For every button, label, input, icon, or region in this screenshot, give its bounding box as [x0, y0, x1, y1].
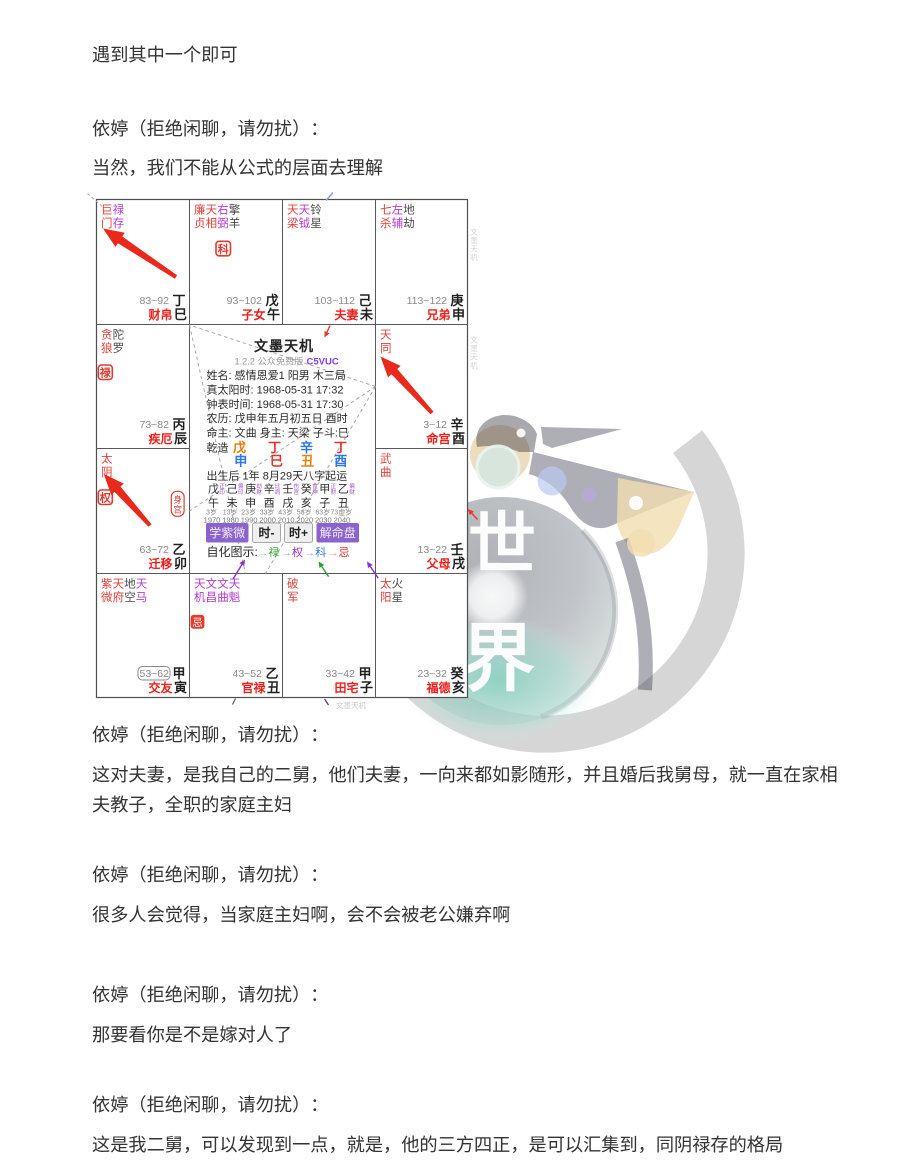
svg-text:权: 权 — [99, 491, 112, 505]
svg-text:太: 太 — [101, 453, 113, 466]
svg-text:贞: 贞 — [194, 216, 206, 230]
svg-text:廉: 廉 — [194, 203, 206, 217]
svg-text:财: 财 — [256, 488, 262, 496]
svg-text:钟表时间: 1968-05-31 17:30: 钟表时间: 1968-05-31 17:30 — [207, 397, 344, 411]
svg-text:狼: 狼 — [101, 341, 113, 355]
svg-text:午: 午 — [267, 307, 280, 322]
svg-text:庚: 庚 — [450, 293, 463, 308]
svg-text:戊: 戊 — [208, 482, 219, 495]
svg-text:丙: 丙 — [172, 417, 185, 432]
svg-text:申: 申 — [452, 307, 465, 322]
svg-text:辅: 辅 — [392, 216, 404, 230]
svg-text:53~62: 53~62 — [140, 668, 170, 680]
svg-text:擎: 擎 — [229, 203, 241, 217]
svg-text:学紫微: 学紫微 — [209, 525, 245, 540]
svg-text:午: 午 — [208, 496, 219, 509]
svg-text:农历: 戊申年五月初五日 酉时: 农历: 戊申年五月初五日 酉时 — [207, 411, 348, 425]
svg-text:阳: 阳 — [380, 591, 392, 604]
svg-text:紫: 紫 — [101, 578, 113, 591]
svg-text:壬: 壬 — [450, 542, 463, 557]
svg-text:星: 星 — [392, 591, 404, 604]
svg-text:右: 右 — [217, 203, 229, 217]
svg-text:1.2.2 公众免费版: 1.2.2 公众免费版 — [235, 356, 304, 367]
svg-text:甲: 甲 — [319, 483, 330, 495]
svg-text:天: 天 — [299, 205, 311, 217]
svg-text:申: 申 — [234, 454, 247, 469]
svg-text:疾厄: 疾厄 — [148, 431, 172, 446]
svg-text:昌: 昌 — [206, 591, 218, 604]
svg-text:103~112: 103~112 — [315, 295, 356, 307]
svg-text:机: 机 — [194, 590, 206, 604]
svg-text:3~12: 3~12 — [423, 419, 447, 431]
svg-text:罗: 罗 — [113, 342, 125, 355]
svg-text:太: 太 — [380, 578, 392, 591]
svg-text:己: 己 — [358, 293, 371, 308]
svg-text:子女: 子女 — [241, 307, 265, 322]
svg-text:己: 己 — [227, 483, 238, 495]
svg-text:63~72: 63~72 — [140, 544, 170, 556]
svg-text:文墨天机: 文墨天机 — [336, 700, 366, 710]
svg-text:乙: 乙 — [338, 482, 349, 495]
svg-text:姓名: 感情恩爱1 阳男 木三局: 姓名: 感情恩爱1 阳男 木三局 — [207, 368, 346, 382]
svg-text:天: 天 — [194, 579, 206, 591]
svg-text:天: 天 — [229, 579, 241, 591]
svg-text:巨: 巨 — [101, 205, 113, 217]
svg-text:财帛: 财帛 — [147, 307, 172, 322]
svg-text:地: 地 — [403, 204, 415, 217]
svg-text:时+: 时+ — [289, 525, 308, 540]
svg-text:夫妻: 夫妻 — [333, 307, 358, 322]
svg-text:同: 同 — [380, 343, 392, 355]
svg-text:73~82: 73~82 — [140, 419, 170, 431]
svg-text:偏: 偏 — [349, 482, 355, 490]
svg-text:劫: 劫 — [256, 482, 262, 490]
svg-text:23~32: 23~32 — [418, 668, 448, 680]
svg-text:官: 官 — [294, 488, 300, 496]
svg-text:府: 府 — [113, 590, 125, 604]
svg-text:军: 军 — [287, 591, 299, 604]
svg-text:丁: 丁 — [172, 293, 185, 308]
svg-text:酉: 酉 — [334, 454, 347, 469]
svg-text:武: 武 — [380, 453, 392, 466]
svg-text:→权: →权 — [281, 546, 303, 559]
svg-text:福德: 福德 — [425, 680, 450, 695]
svg-text:33~42: 33~42 — [326, 668, 356, 680]
svg-text:肩: 肩 — [275, 488, 281, 496]
svg-text:寅: 寅 — [174, 680, 187, 695]
svg-text:神: 神 — [312, 488, 318, 496]
svg-text:命宫: 命宫 — [425, 431, 450, 446]
svg-text:曲: 曲 — [217, 591, 229, 604]
svg-text:文: 文 — [206, 577, 218, 591]
svg-text:甲: 甲 — [172, 666, 185, 681]
svg-text:巳: 巳 — [174, 307, 187, 322]
svg-text:甲: 甲 — [358, 666, 371, 681]
svg-text:空: 空 — [124, 590, 136, 604]
svg-text:13~22: 13~22 — [418, 544, 448, 556]
svg-text:自化图示:: 自化图示: — [207, 545, 258, 559]
svg-text:财: 财 — [331, 488, 337, 496]
svg-text:羊: 羊 — [229, 216, 241, 230]
svg-text:印: 印 — [238, 489, 244, 496]
svg-text:禄: 禄 — [113, 203, 125, 217]
svg-text:亥: 亥 — [301, 495, 312, 509]
svg-text:→禄: →禄 — [258, 545, 280, 559]
svg-text:星: 星 — [310, 217, 322, 230]
svg-text:禄: 禄 — [99, 366, 112, 380]
svg-text:身: 身 — [173, 495, 182, 505]
svg-text:子: 子 — [319, 496, 330, 509]
svg-text:破: 破 — [287, 577, 299, 591]
svg-text:113~122: 113~122 — [407, 295, 448, 307]
svg-text:壬: 壬 — [282, 482, 293, 495]
svg-text:交友: 交友 — [148, 680, 172, 695]
svg-text:辰: 辰 — [174, 431, 188, 446]
svg-text:文墨天机: 文墨天机 — [469, 227, 478, 262]
svg-text:钺: 钺 — [299, 216, 311, 230]
svg-text:出生后 1年 8月29天八字起运: 出生后 1年 8月29天八字起运 — [207, 468, 348, 482]
svg-text:微: 微 — [101, 590, 113, 604]
svg-text:辛: 辛 — [264, 481, 275, 495]
svg-text:劫: 劫 — [403, 217, 415, 230]
svg-text:迁移: 迁移 — [148, 556, 172, 571]
svg-text:天: 天 — [380, 330, 392, 342]
svg-text:子: 子 — [360, 680, 373, 695]
svg-text:文墨天机: 文墨天机 — [469, 335, 478, 371]
svg-text:食: 食 — [312, 482, 318, 490]
svg-text:兄弟: 兄弟 — [425, 307, 450, 322]
svg-text:乙: 乙 — [172, 542, 185, 557]
svg-text:曲: 曲 — [380, 466, 392, 479]
svg-text:C5VUC: C5VUC — [307, 357, 339, 368]
svg-text:地: 地 — [124, 578, 136, 591]
svg-text:命主: 文曲 身主: 天梁 子斗:巳: 命主: 文曲 身主: 天梁 子斗:巳 — [207, 426, 349, 440]
svg-text:陀: 陀 — [113, 328, 125, 342]
svg-text:七: 七 — [380, 204, 392, 217]
svg-text:科: 科 — [218, 242, 229, 256]
svg-text:天: 天 — [113, 579, 125, 591]
svg-text:杀: 杀 — [380, 216, 392, 230]
svg-text:伤: 伤 — [294, 482, 300, 490]
svg-text:未: 未 — [227, 496, 238, 509]
svg-text:相: 相 — [206, 217, 218, 230]
svg-text:天: 天 — [206, 205, 218, 217]
svg-text:官禄: 官禄 — [241, 680, 266, 695]
svg-text:戌: 戌 — [452, 556, 465, 571]
svg-text:门: 门 — [101, 216, 113, 230]
svg-text:文: 文 — [217, 577, 229, 591]
svg-text:乾造: 乾造 — [207, 441, 229, 455]
svg-text:忌: 忌 — [192, 617, 203, 629]
svg-text:丑: 丑 — [267, 680, 280, 695]
svg-text:父母: 父母 — [425, 557, 450, 571]
svg-text:93~102: 93~102 — [227, 295, 262, 307]
svg-text:时-: 时- — [259, 525, 275, 540]
svg-text:正: 正 — [219, 483, 225, 490]
svg-text:83~92: 83~92 — [140, 295, 170, 307]
svg-text:铃: 铃 — [310, 203, 322, 217]
svg-text:卯: 卯 — [174, 556, 187, 571]
svg-text:辛: 辛 — [450, 417, 463, 432]
svg-text:比: 比 — [275, 482, 281, 490]
svg-text:丑: 丑 — [338, 497, 349, 509]
svg-text:酉: 酉 — [452, 431, 465, 446]
svg-text:解命盘: 解命盘 — [320, 525, 356, 540]
svg-text:癸: 癸 — [301, 481, 312, 495]
svg-text:财: 财 — [349, 488, 355, 496]
svg-text:丑: 丑 — [301, 454, 314, 469]
svg-text:魁: 魁 — [229, 590, 241, 604]
svg-text:印: 印 — [219, 489, 225, 496]
svg-text:酉: 酉 — [264, 497, 275, 509]
svg-text:巳: 巳 — [270, 454, 283, 469]
svg-text:梁: 梁 — [287, 216, 299, 230]
svg-text:弼: 弼 — [217, 217, 229, 230]
svg-text:存: 存 — [113, 216, 125, 230]
svg-text:→科: →科 — [304, 545, 326, 559]
svg-text:乙: 乙 — [265, 666, 278, 681]
svg-text:未: 未 — [359, 307, 374, 322]
svg-text:贪: 贪 — [101, 328, 113, 342]
svg-text:正: 正 — [331, 483, 337, 490]
svg-text:宫: 宫 — [173, 505, 182, 515]
svg-text:天: 天 — [136, 579, 148, 591]
svg-text:真太阳时: 1968-05-31 17:32: 真太阳时: 1968-05-31 17:32 — [207, 382, 344, 396]
svg-text:田宅: 田宅 — [334, 680, 358, 695]
svg-text:偏: 偏 — [238, 482, 244, 490]
svg-text:左: 左 — [392, 203, 404, 217]
svg-text:戌: 戌 — [282, 496, 293, 509]
svg-text:火: 火 — [392, 578, 404, 591]
svg-text:天: 天 — [287, 205, 299, 217]
svg-text:马: 马 — [136, 591, 148, 604]
svg-text:戊: 戊 — [264, 293, 278, 308]
svg-text:世: 世 — [468, 507, 536, 583]
svg-text:癸: 癸 — [449, 666, 464, 681]
svg-text:→忌: →忌 — [328, 546, 350, 559]
svg-text:亥: 亥 — [452, 680, 465, 695]
svg-text:庚: 庚 — [245, 481, 256, 495]
svg-text:43~52: 43~52 — [233, 668, 263, 680]
svg-text:界: 界 — [461, 617, 535, 700]
svg-text:申: 申 — [245, 496, 256, 509]
svg-text:文墨天机: 文墨天机 — [254, 338, 314, 354]
